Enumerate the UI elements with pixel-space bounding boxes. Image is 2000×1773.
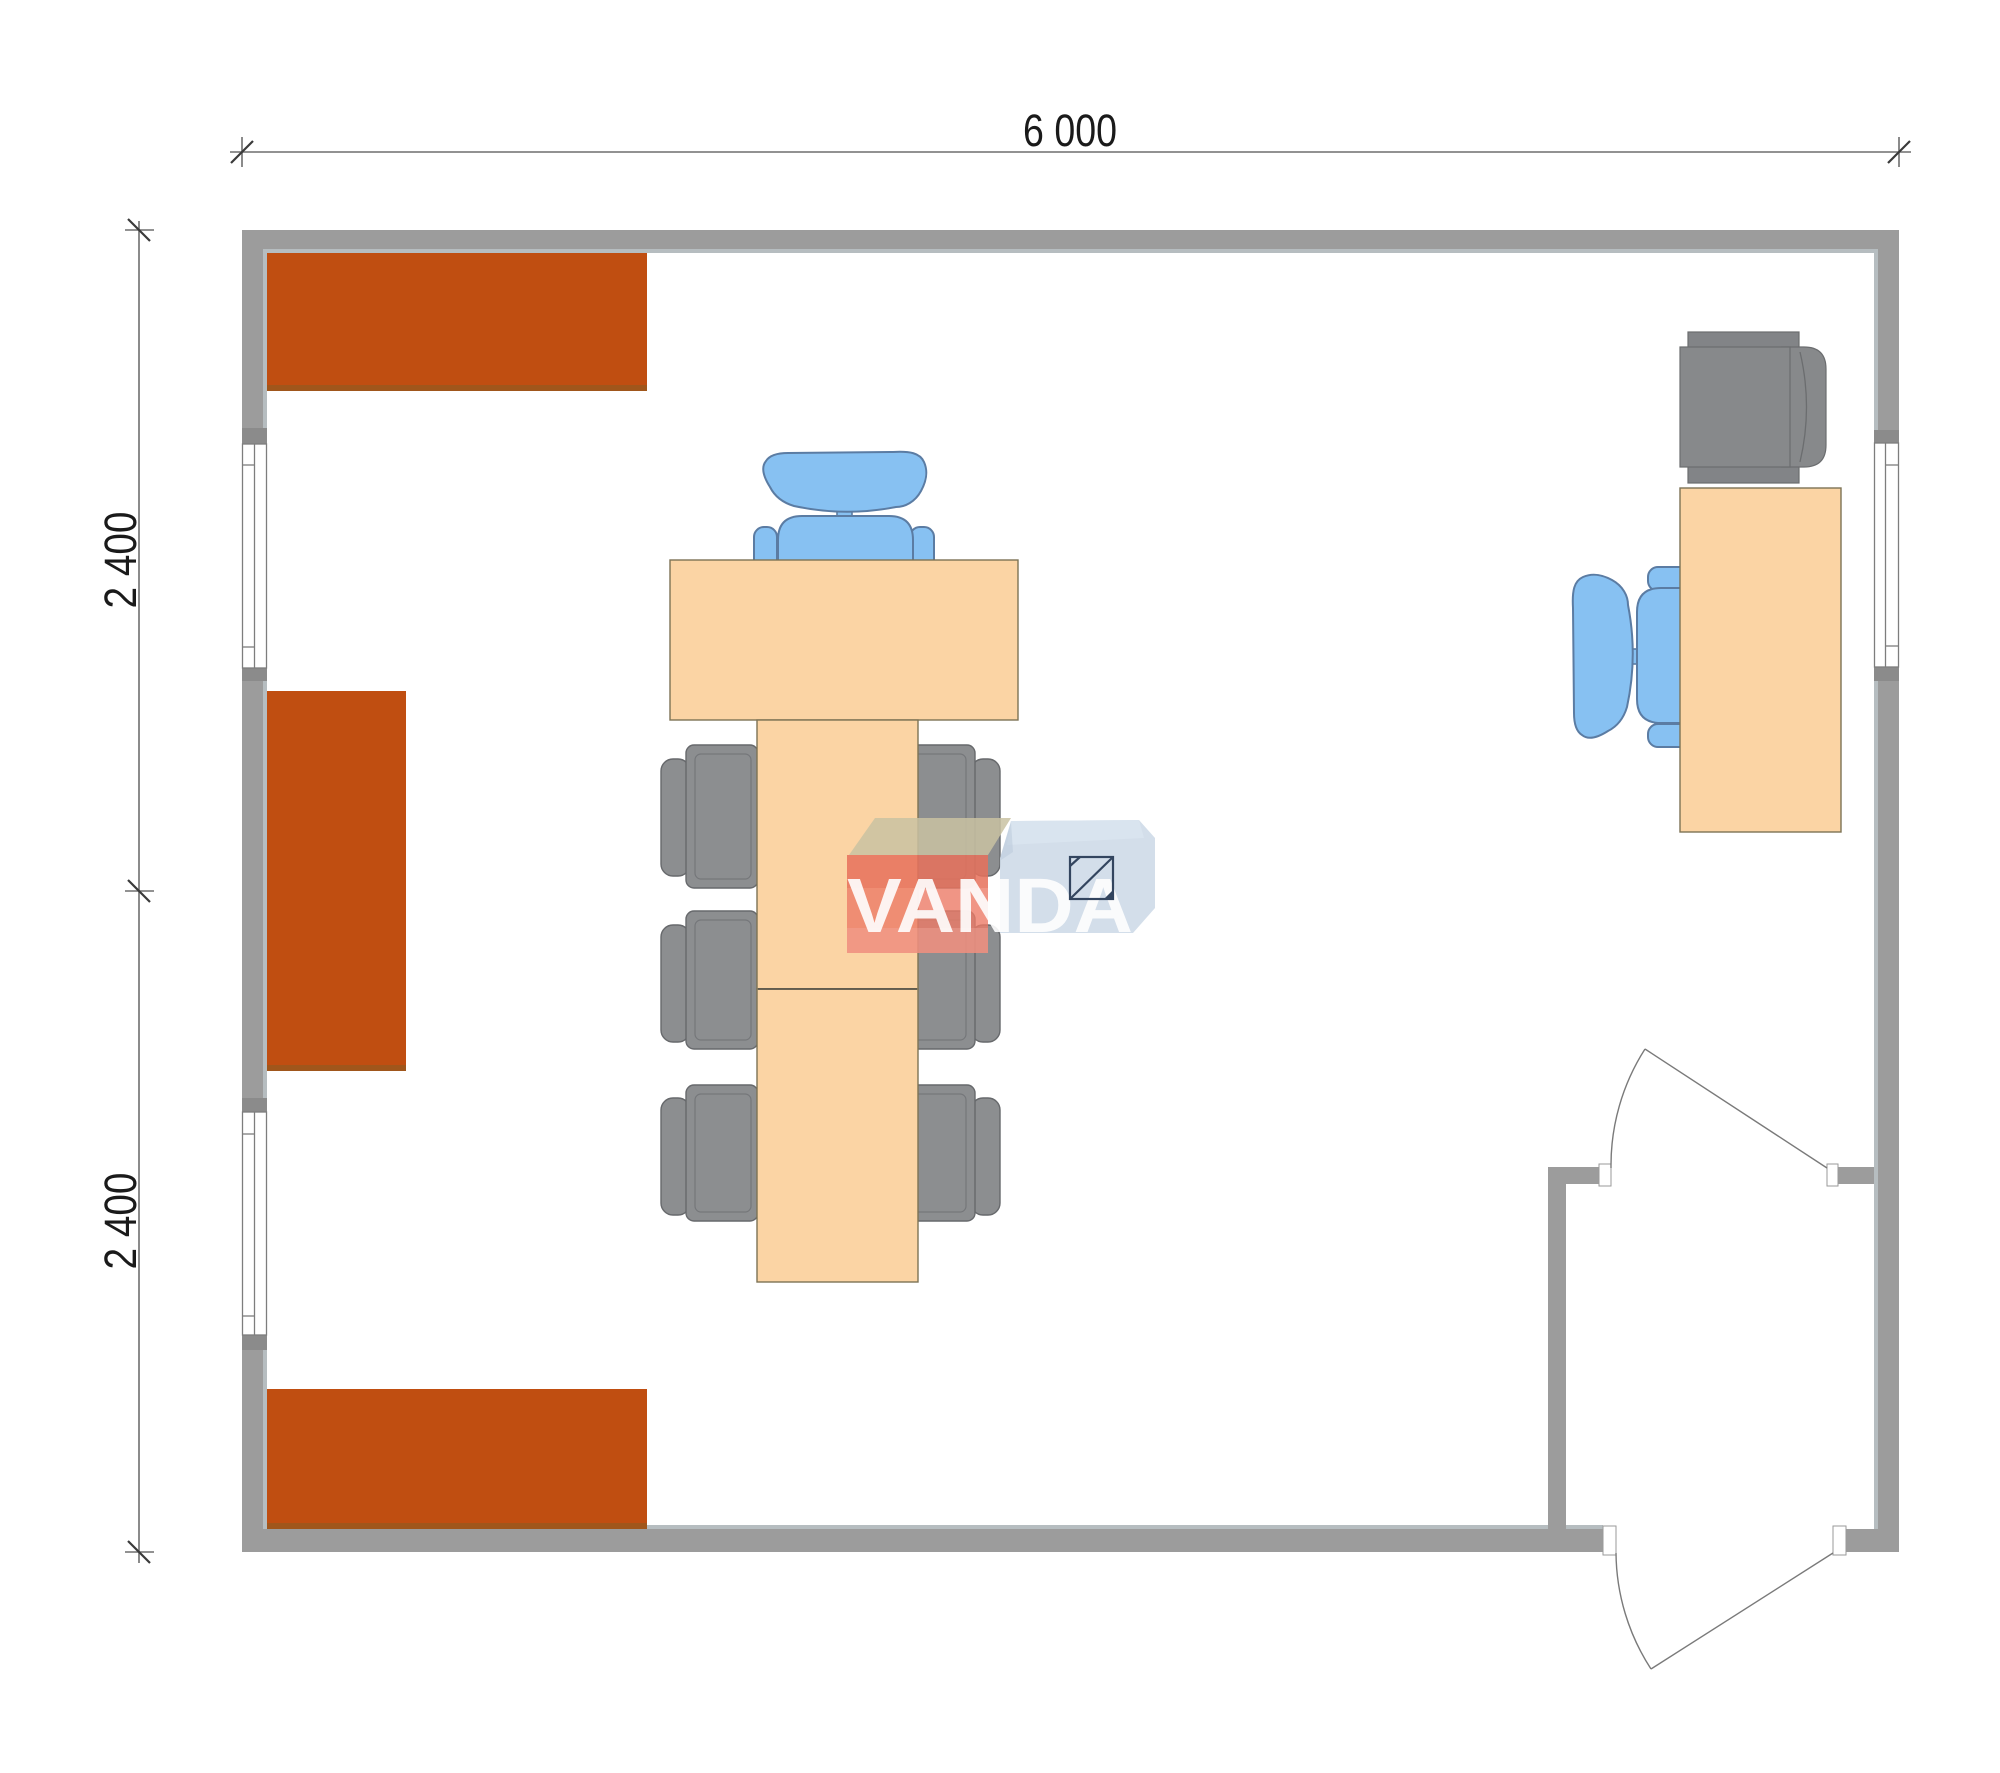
svg-text:2 400: 2 400 <box>95 1173 146 1270</box>
svg-text:2 400: 2 400 <box>95 512 146 609</box>
svg-text:6 000: 6 000 <box>1023 105 1117 156</box>
svg-text:VANDA: VANDA <box>847 863 1133 949</box>
